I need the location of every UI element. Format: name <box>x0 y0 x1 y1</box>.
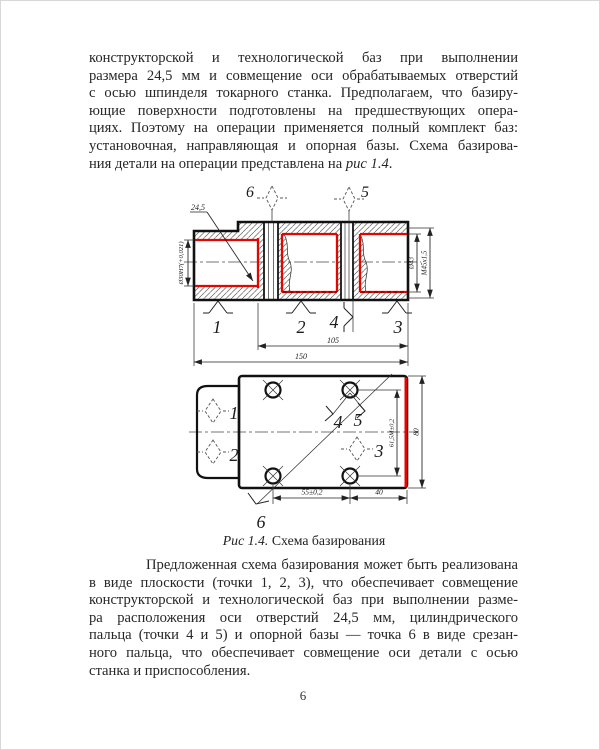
support-point-5-plan: 5 <box>350 393 365 430</box>
datum-symbol-2: 2 <box>197 440 239 465</box>
dim-label-55: 55±0,2 <box>302 488 323 497</box>
plan-dimensions: 55±0,2 40 80 61,5М±0,2 <box>273 376 426 504</box>
support-point-2: 2 <box>286 301 316 337</box>
dim-label-105: 105 <box>327 336 339 345</box>
support-point-4: 4 <box>330 300 354 332</box>
dim-label-150: 150 <box>295 352 307 361</box>
dim-right-side: Ø43 М45х1,5 <box>408 228 435 298</box>
dim-label-24-5: 24,5 <box>191 203 205 212</box>
section-view: 6 5 24,5 Ø30Н7(+0,021) <box>178 184 434 366</box>
point-label-5-plan: 5 <box>354 410 363 430</box>
figure-caption-text: Схема базирования <box>272 533 385 548</box>
point-label-4: 4 <box>330 312 339 332</box>
point-label-6-plan: 6 <box>257 512 266 532</box>
text-line: размера 24,5 мм и совмещение оси обрабат… <box>89 68 518 86</box>
datum-symbol-1: 1 <box>197 399 239 423</box>
page-number: 6 <box>1 688 600 704</box>
datum-label-5: 5 <box>361 184 369 201</box>
leader-24-5: 24,5 <box>190 203 253 281</box>
text-line: конструкторской и технологической баз пр… <box>89 592 518 610</box>
holes <box>266 383 358 484</box>
book-page: конструкторской и технологической баз пр… <box>0 0 600 750</box>
text-line: ра расположения оси отверстий 24,5 мм, ц… <box>89 610 518 628</box>
point-label-2: 2 <box>297 317 306 337</box>
text-line: пальца (точки 4 и 5) и опорной базы — то… <box>89 627 518 645</box>
point-label-3: 3 <box>393 317 403 337</box>
text-line: в виде плоскости (точки 1, 2, 3), что об… <box>89 575 518 593</box>
text-line: ющие поверхности подготовлены на предшес… <box>89 103 518 121</box>
text-line: Предложенная схема базирования может быт… <box>89 557 518 575</box>
figure-caption-number: Рис 1.4. <box>223 533 269 548</box>
support-point-3: 3 <box>382 301 412 337</box>
paragraph-top: конструкторской и технологической баз пр… <box>89 50 518 173</box>
text-line: с осью шпинделя токарного станка. Предпо… <box>89 85 518 103</box>
text-line: циях. Поэтому на операции применяется по… <box>89 120 518 138</box>
point-label-1: 1 <box>213 317 222 337</box>
text-line: конструкторской и технологической баз пр… <box>89 50 518 68</box>
figure-drawing: 6 5 24,5 Ø30Н7(+0,021) <box>151 166 471 558</box>
datum-label-6: 6 <box>246 184 254 201</box>
datum-symbol-6: 6 <box>246 184 287 222</box>
dim-label-bore: Ø30Н7(+0,021) <box>178 241 185 285</box>
plan-view: 1 2 3 4 5 <box>189 374 426 532</box>
dim-label-d43: Ø43 <box>408 256 416 270</box>
basing-surfaces-red <box>195 234 407 292</box>
dim-label-61-5: 61,5М±0,2 <box>389 418 396 447</box>
dim-label-m45: М45х1,5 <box>421 250 429 276</box>
figure-caption: Рис 1.4. Схема базирования <box>1 533 600 549</box>
dim-label-80: 80 <box>412 428 421 436</box>
support-point-1: 1 <box>203 301 233 337</box>
paragraph-bottom: Предложенная схема базирования может быт… <box>89 557 518 680</box>
text-line: станка и приспособления. <box>89 663 518 681</box>
text-line: ного пальца, что обеспечивает совмещение… <box>89 645 518 663</box>
datum-symbol-3: 3 <box>341 437 384 461</box>
datum-symbol-5: 5 <box>334 184 369 222</box>
datum-label-3: 3 <box>374 441 384 461</box>
text-line: установочная, направляющая и опорная баз… <box>89 138 518 156</box>
dim-bore-left: Ø30Н7(+0,021) <box>178 240 194 286</box>
datum-label-1: 1 <box>230 403 239 423</box>
datum-label-2: 2 <box>230 445 239 465</box>
dim-label-40: 40 <box>375 488 383 497</box>
